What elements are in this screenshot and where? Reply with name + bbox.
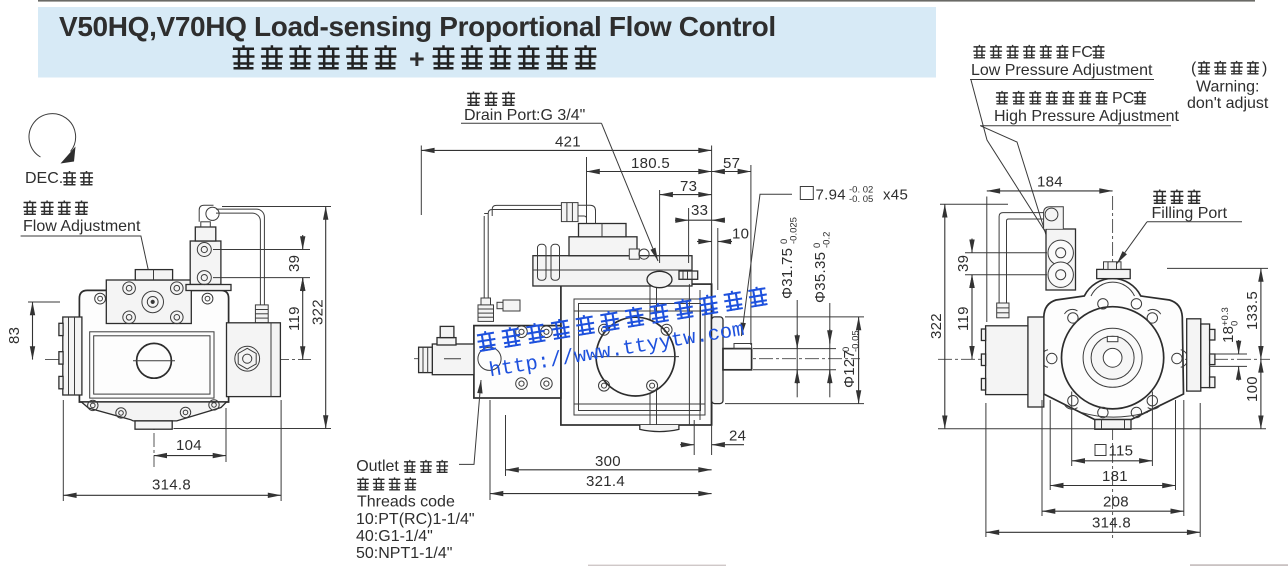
svg-text:): ) [1262,60,1267,77]
svg-text:Flow Adjustment: Flow Adjustment [23,218,141,235]
svg-text:100: 100 [1244,376,1261,402]
svg-text:-0.2: -0.2 [822,232,833,248]
svg-text:314.8: 314.8 [1092,515,1131,532]
svg-text:314.8: 314.8 [152,477,191,494]
svg-text:(: ( [1191,60,1197,77]
svg-text:Low Pressure Adjustment: Low Pressure Adjustment [971,62,1153,79]
svg-text:321.4: 321.4 [586,473,625,490]
svg-text:421: 421 [555,133,581,150]
svg-text:Drain Port:G 3/4": Drain Port:G 3/4" [464,107,585,124]
svg-text:39: 39 [955,255,972,272]
svg-text:-0.025: -0.025 [789,217,800,244]
svg-text:133.5: 133.5 [1244,291,1261,330]
svg-text:39: 39 [286,255,303,272]
svg-text:FC: FC [1072,44,1093,61]
svg-text:83: 83 [6,327,23,344]
svg-text:57: 57 [723,155,740,172]
svg-text:0: 0 [1230,321,1241,326]
svg-text:208: 208 [1103,494,1129,511]
svg-text:50:NPT1-1/4": 50:NPT1-1/4" [356,545,452,562]
svg-text:33: 33 [691,202,708,219]
svg-text:40:G1-1/4": 40:G1-1/4" [356,528,433,545]
svg-text:DEC.: DEC. [25,170,63,187]
svg-text:Outlet: Outlet [356,458,399,475]
svg-text:7.94: 7.94 [816,187,846,204]
svg-text:300: 300 [595,453,621,470]
svg-text:104: 104 [176,437,202,454]
svg-text:18: 18 [1220,326,1237,343]
svg-text:119: 119 [955,306,972,331]
svg-text:10: 10 [732,226,749,243]
svg-text:181: 181 [1102,468,1128,485]
svg-text:10:PT(RC)1-1/4": 10:PT(RC)1-1/4" [356,511,475,528]
svg-text:322: 322 [928,313,945,339]
svg-text:24: 24 [729,428,746,445]
svg-text:Threads code: Threads code [357,494,455,511]
svg-text:119: 119 [286,306,303,331]
svg-text:322: 322 [310,299,327,325]
svg-text:don't adjust: don't adjust [1187,95,1269,112]
svg-text:115: 115 [1109,443,1134,460]
svg-text:Warning:: Warning: [1196,79,1259,96]
svg-text:180.5: 180.5 [631,155,670,172]
svg-text:73: 73 [680,178,697,195]
svg-text:PC: PC [1112,90,1134,107]
svg-text:184: 184 [1037,174,1063,191]
svg-text:High Pressure Adjustment: High Pressure Adjustment [994,108,1180,125]
svg-text:+: + [409,44,425,74]
svg-text:Φ31.75: Φ31.75 [779,248,796,299]
svg-text:Φ127: Φ127 [841,350,858,388]
svg-text:x45: x45 [883,187,908,204]
svg-text:-0. 05: -0. 05 [849,194,873,205]
svg-text:-0.05: -0.05 [851,330,862,352]
svg-text:Filling Port: Filling Port [1152,205,1228,222]
svg-text:V50HQ,V70HQ Load-sensing Propo: V50HQ,V70HQ Load-sensing Proportional Fl… [59,11,776,42]
svg-text:Φ35.35: Φ35.35 [812,252,829,303]
